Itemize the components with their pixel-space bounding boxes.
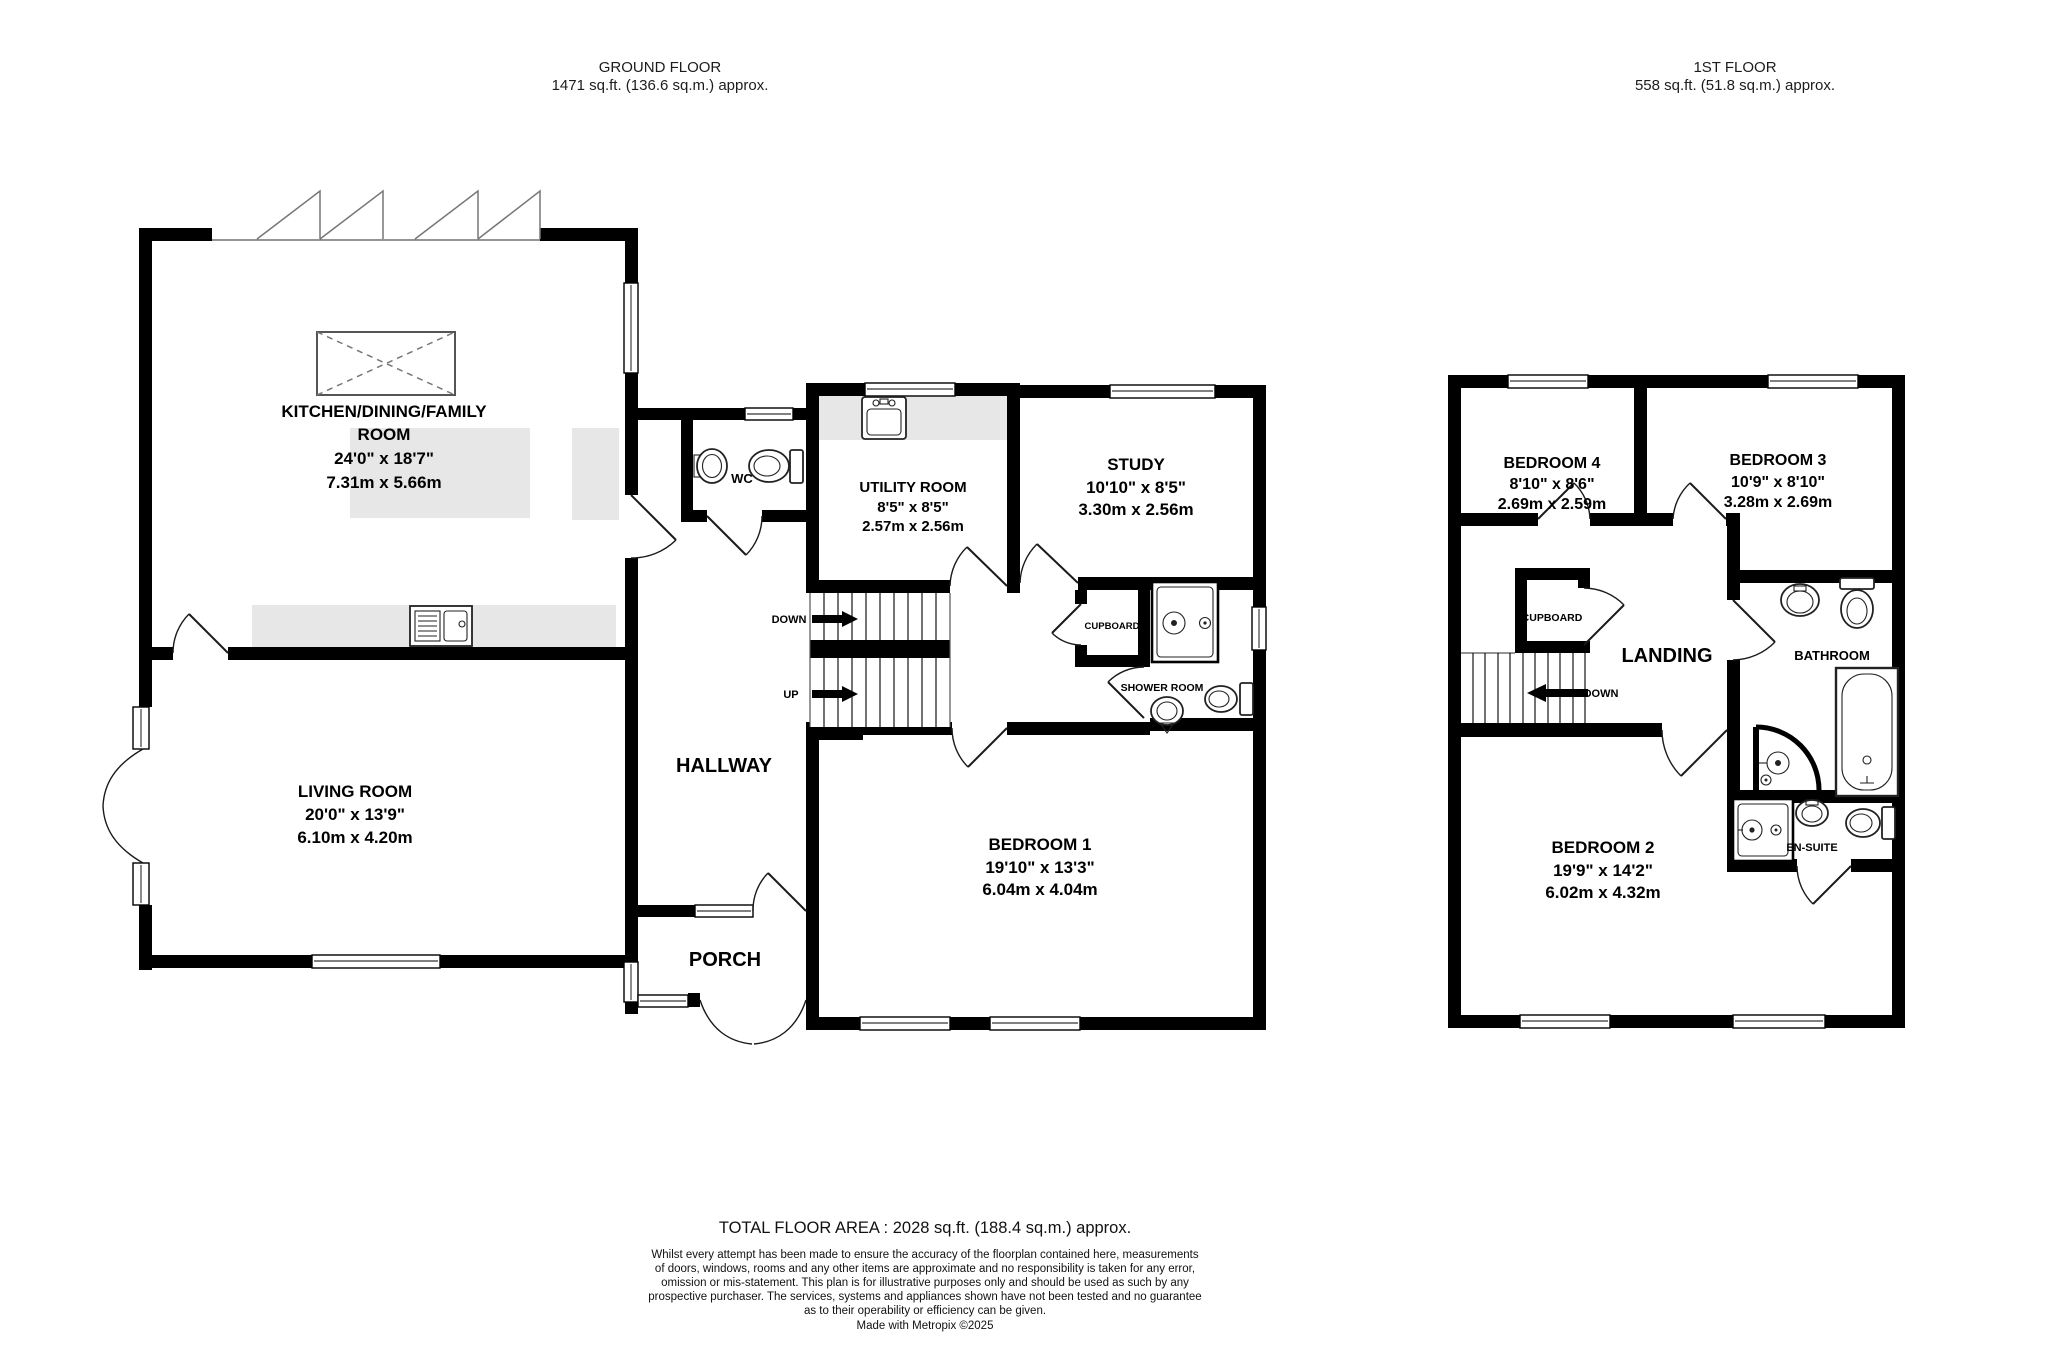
study-dims-imperial: 10'10" x 8'5" (1086, 478, 1186, 497)
door-bathroom (1733, 600, 1775, 660)
utility-dims-imperial: 8'5" x 8'5" (877, 499, 948, 516)
kitchen-sink-icon (410, 606, 472, 646)
cupboard-first-label: CUPBOARD (1522, 612, 1583, 624)
bathroom-toilet-icon (1840, 578, 1874, 628)
door-kitchen-living (173, 614, 228, 653)
bedroom1-window (990, 1017, 1080, 1030)
bedroom2-dims-metric: 6.02m x 4.32m (1545, 883, 1660, 902)
living-room-label: LIVING ROOM (298, 782, 412, 801)
study-dims-metric: 3.30m x 2.56m (1078, 500, 1193, 519)
door-cupboard-ground (1052, 604, 1081, 645)
kitchen-window (624, 283, 638, 373)
ground-floor-area: 1471 sq.ft. (136.6 sq.m.) approx. (552, 77, 769, 94)
wc-label: WC (731, 471, 753, 486)
disclaimer-line: as to their operability or efficiency ca… (804, 1305, 1046, 1317)
bifold-door-icon (257, 191, 383, 239)
landing-label: LANDING (1621, 645, 1712, 667)
bedroom3-dims-metric: 3.28m x 2.69m (1724, 494, 1833, 511)
kitchen-dims-imperial: 24'0" x 18'7" (334, 449, 434, 468)
bedroom3-dims-imperial: 10'9" x 8'10" (1731, 474, 1825, 491)
corner-shower-icon (1753, 727, 1819, 790)
wc-toilet-icon (749, 450, 803, 483)
bedroom4-dims-metric: 2.69m x 2.59m (1498, 496, 1607, 513)
door-porch-hallway (753, 873, 806, 911)
utility-counter (819, 395, 1007, 440)
disclaimer-line: of doors, windows, rooms and any other i… (655, 1263, 1195, 1275)
living-room-dims-metric: 6.10m x 4.20m (297, 828, 412, 847)
door-cupboard-first (1584, 588, 1624, 645)
bay-window (103, 707, 149, 905)
kitchen-counter-right (572, 428, 619, 520)
bedroom2-label: BEDROOM 2 (1552, 838, 1655, 857)
wc-sink-icon (694, 449, 727, 483)
stairs-first (1461, 653, 1597, 723)
shower-room-window (1252, 607, 1266, 650)
living-room-dims-imperial: 20'0" x 13'9" (305, 805, 405, 824)
bedroom1-window (860, 1017, 950, 1030)
bedroom2-window (1520, 1015, 1610, 1028)
utility-sink-icon (862, 397, 906, 439)
bathroom-sink-icon (1781, 584, 1819, 616)
disclaimer-line: Whilst every attempt has been made to en… (651, 1249, 1198, 1261)
ensuite-sink-icon (1796, 800, 1828, 826)
bedroom1-label: BEDROOM 1 (989, 835, 1092, 854)
bedroom4-window (1508, 375, 1588, 388)
wc-window (745, 408, 793, 420)
bathroom-label: BATHROOM (1794, 648, 1870, 663)
bedroom4-dims-imperial: 8'10" x 8'6" (1509, 476, 1594, 493)
kitchen-label-2: ROOM (358, 425, 411, 444)
ground-floor-plan: KITCHEN/DINING/FAMILY ROOM 24'0" x 18'7"… (103, 191, 1266, 1044)
living-room-window (312, 955, 440, 968)
shower-room-toilet-icon (1205, 683, 1253, 715)
footer: TOTAL FLOOR AREA : 2028 sq.ft. (188.4 sq… (648, 1219, 1201, 1332)
door-study (1020, 544, 1078, 583)
bedroom4-label: BEDROOM 4 (1504, 455, 1601, 472)
bedroom3-label: BEDROOM 3 (1730, 452, 1827, 469)
first-floor-title: 1ST FLOOR (1693, 59, 1776, 76)
disclaimer-line: prospective purchaser. The services, sys… (648, 1291, 1201, 1303)
study-label: STUDY (1107, 455, 1165, 474)
utility-window (865, 383, 955, 396)
first-floor-area: 558 sq.ft. (51.8 sq.m.) approx. (1635, 77, 1835, 94)
first-floor-plan: BEDROOM 4 8'10" x 8'6" 2.69m x 2.59m BED… (1448, 375, 1905, 1028)
kitchen-label: KITCHEN/DINING/FAMILY (281, 402, 487, 421)
total-floor-area: TOTAL FLOOR AREA : 2028 sq.ft. (188.4 sq… (719, 1219, 1131, 1237)
door-utility (950, 547, 1007, 586)
floorplan-canvas: KITCHEN/DINING/FAMILY ROOM 24'0" x 18'7"… (0, 0, 2048, 1345)
utility-dims-metric: 2.57m x 2.56m (862, 518, 964, 535)
ground-floor-title: GROUND FLOOR (599, 59, 722, 76)
stairs-up-label: UP (783, 689, 798, 701)
shower-room-label: SHOWER ROOM (1121, 682, 1204, 694)
cupboard-ground-label: CUPBOARD (1085, 621, 1140, 632)
metropix-credit: Made with Metropix ©2025 (857, 1320, 994, 1332)
bedroom3-window (1768, 375, 1858, 388)
bifold-door-icon (415, 191, 540, 239)
bedroom2-window (1733, 1015, 1825, 1028)
ensuite-shower-icon (1733, 799, 1793, 861)
stairs-ground (806, 593, 950, 740)
stairs-down-label-first: DOWN (1584, 688, 1619, 700)
study-window (1110, 385, 1215, 398)
hallway-label: HALLWAY (676, 755, 773, 777)
bedroom1-dims-imperial: 19'10" x 13'3" (985, 858, 1094, 877)
bedroom1-dims-metric: 6.04m x 4.04m (982, 880, 1097, 899)
disclaimer-line: omission or mis-statement. This plan is … (661, 1277, 1189, 1289)
door-wc (707, 516, 762, 555)
door-porch-entrance (700, 1000, 806, 1044)
bedroom2-dims-imperial: 19'9" x 14'2" (1553, 861, 1653, 880)
bath-icon (1836, 668, 1898, 796)
door-ensuite (1797, 866, 1851, 904)
porch-front-window (638, 995, 688, 1007)
kitchen-island (317, 332, 455, 395)
porch-side-window (624, 962, 638, 1002)
stairs-down-label: DOWN (772, 614, 807, 626)
ensuite-label: EN-SUITE (1786, 842, 1837, 854)
kitchen-dims-metric: 7.31m x 5.66m (326, 473, 441, 492)
ensuite-toilet-icon (1846, 807, 1895, 839)
utility-label: UTILITY ROOM (859, 479, 966, 496)
hallway-porch-window (695, 905, 753, 917)
door-bedroom1 (952, 728, 1007, 767)
door-bedroom2 (1662, 730, 1727, 776)
porch-label: PORCH (689, 949, 761, 971)
door-bedroom3 (1673, 483, 1726, 519)
shower-icon (1152, 582, 1218, 662)
door-kitchen-hallway (631, 495, 676, 558)
